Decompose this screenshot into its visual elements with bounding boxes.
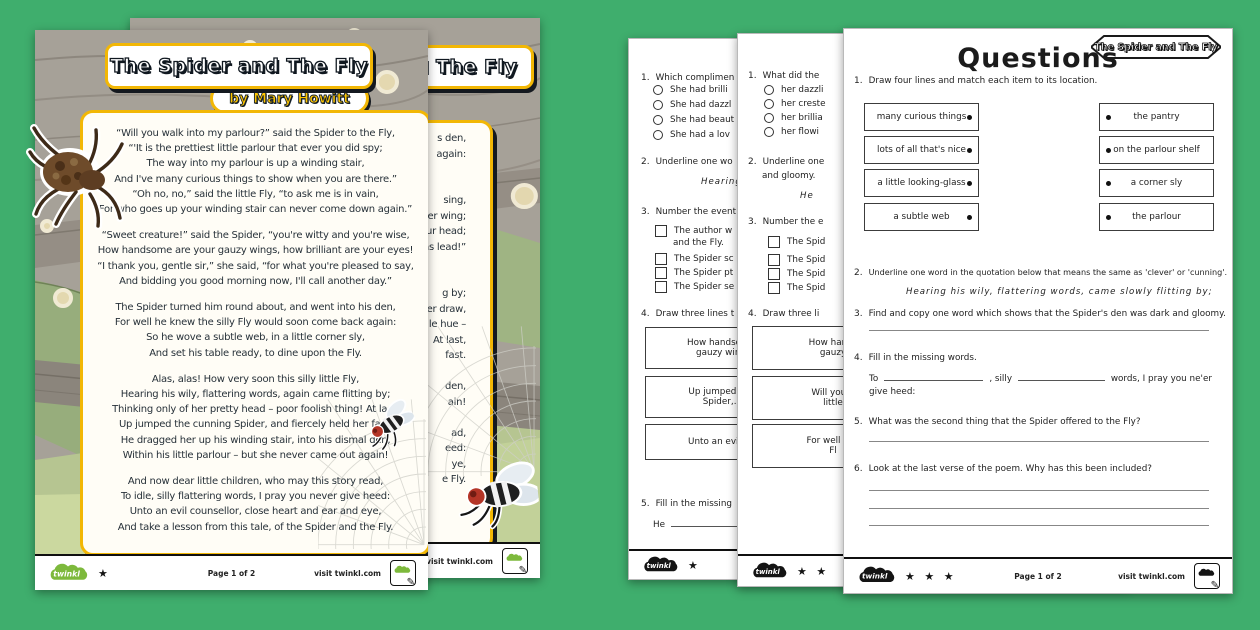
answer-option[interactable]: her dazzli: [764, 85, 824, 95]
poem-line: “I thank you, gentle sir,” she said, “fo…: [83, 259, 428, 274]
question-text: Number the event: [656, 207, 736, 217]
poem-line: And take a lesson from this tale, of the…: [83, 520, 428, 535]
poem-stanza: And now dear little children, who may th…: [83, 474, 428, 535]
answer-option[interactable]: She had dazzl: [653, 100, 731, 110]
answer-option[interactable]: She had brilli: [653, 85, 728, 95]
poem-line: And set his table ready, to dine upon th…: [83, 346, 428, 361]
checkbox-icon[interactable]: [655, 225, 667, 237]
match-box-label: little: [823, 398, 843, 408]
connector-dot-icon[interactable]: [967, 115, 972, 120]
fill-text: To: [869, 374, 878, 384]
sequence-label: The Spid: [787, 269, 825, 279]
poem-line: How handsome are your gauzy wings, how b…: [83, 243, 428, 258]
question-3: 3. Number the event: [641, 207, 736, 217]
poem-line: “'It is the prettiest little parlour tha…: [83, 141, 428, 156]
poem-author: by Mary Howitt: [229, 91, 350, 107]
quotation-text: Hearing his wily, flattering words, came…: [906, 287, 1213, 297]
match-box-right[interactable]: on the parlour shelf: [1099, 136, 1214, 164]
question-text: Underline one word in the quotation belo…: [869, 267, 1228, 277]
sequence-label: The Spid: [787, 255, 825, 265]
pencil-icon: ✎: [407, 577, 415, 588]
connector-dot-icon[interactable]: [1106, 148, 1111, 153]
radio-icon[interactable]: [653, 100, 663, 110]
sequence-item[interactable]: The Spider se: [655, 281, 734, 293]
answer-option[interactable]: She had a lov: [653, 130, 730, 140]
poem-line: And bidding you good morning now, I'll c…: [83, 274, 428, 289]
questions-footer: twinkl ★ ★ ★ Page 1 of 2 visit twinkl.co…: [844, 557, 1232, 593]
match-box-right[interactable]: the parlour: [1099, 203, 1214, 231]
visit-link[interactable]: visit twinkl.com: [426, 557, 493, 566]
match-box-left[interactable]: a subtle web: [864, 203, 979, 231]
poem-line: So he wove a subtle web, in a little cor…: [83, 330, 428, 345]
question-text: Number the e: [763, 217, 824, 227]
question-text: Fill in the missing words.: [869, 353, 977, 363]
answer-line[interactable]: [869, 507, 1209, 509]
match-box-label: the pantry: [1133, 112, 1179, 122]
question-number: 5.: [854, 417, 863, 427]
quotation-text: He: [800, 191, 814, 201]
poem-line: The Spider turned him round about, and w…: [83, 300, 428, 315]
question-number: 1.: [854, 76, 863, 86]
match-box-label: a little looking-glass: [877, 178, 965, 188]
question-1: 1. Which complimen: [641, 73, 734, 83]
twinkl-logo: twinkl: [750, 562, 788, 581]
question-text: Find and copy one word which shows that …: [869, 309, 1226, 319]
question-6: 6. Look at the last verse of the poem. W…: [854, 464, 1152, 474]
question-text: Underline one wo: [656, 157, 733, 167]
question-text: Look at the last verse of the poem. Why …: [869, 464, 1152, 474]
spider-web-art: [428, 326, 536, 476]
option-label: her brillia: [781, 113, 823, 123]
question-2: 2. Underline one word in the quotation b…: [854, 267, 1227, 278]
sequence-item[interactable]: The author w: [655, 225, 732, 237]
answer-prefix: He: [653, 520, 665, 530]
radio-icon[interactable]: [653, 85, 663, 95]
fly-illustration-large: [440, 453, 541, 536]
page-title: Questions: [844, 43, 1232, 74]
question-number: 4.: [641, 309, 650, 319]
connector-dot-icon[interactable]: [1106, 181, 1111, 186]
poem-line: To idle, silly flattering words, I pray …: [83, 489, 428, 504]
connector-dot-icon[interactable]: [967, 148, 972, 153]
poem-title-banner: The Spider and The Fly: [105, 43, 373, 89]
match-box-label: lots of all that's nice: [877, 145, 966, 155]
page-number: Page 1 of 2: [844, 572, 1232, 581]
poem-line: For well he knew the silly Fly would soo…: [83, 315, 428, 330]
checkbox-icon[interactable]: [768, 254, 780, 266]
match-box-label: a subtle web: [893, 212, 949, 222]
poem-line: For who goes up your winding stair can n…: [83, 202, 428, 217]
radio-icon[interactable]: [764, 113, 774, 123]
poem-text-panel: “Will you walk into my parlour?” said th…: [80, 110, 428, 556]
difficulty-stars: ★ ★: [797, 565, 829, 578]
poem-line: Unto an evil counsellor, close heart and…: [83, 504, 428, 519]
resource-preview-canvas: The Spider and The Fly s den, again: sin…: [0, 0, 1260, 630]
answer-blank[interactable]: [1018, 371, 1105, 381]
twinkl-badge-icon: ✎: [1194, 563, 1220, 589]
checkbox-icon[interactable]: [655, 267, 667, 279]
option-label: She had brilli: [670, 85, 728, 95]
question-number: 1.: [641, 73, 650, 83]
pencil-icon: ✎: [519, 565, 527, 576]
page-number: Page 1 of 2: [35, 569, 428, 578]
match-box-left[interactable]: a little looking-glass: [864, 169, 979, 197]
quotation-text: Hearing: [701, 177, 742, 187]
sequence-item[interactable]: The Spid: [768, 254, 825, 266]
connector-dot-icon[interactable]: [967, 181, 972, 186]
poem-line: Alas, alas! How very soon this silly lit…: [83, 372, 428, 387]
radio-icon[interactable]: [764, 85, 774, 95]
twinkl-badge-icon: ✎: [390, 560, 416, 586]
poem-body: “Will you walk into my parlour?” said th…: [83, 113, 428, 535]
match-box-label: on the parlour shelf: [1113, 145, 1200, 155]
answer-line[interactable]: [869, 489, 1209, 491]
option-label: She had dazzl: [670, 100, 731, 110]
question-text: What did the: [763, 71, 820, 81]
poem-line: “Will you walk into my parlour?” said th…: [83, 126, 428, 141]
sequence-label-line2: and the Fly.: [673, 238, 724, 248]
sequence-label: The Spid: [787, 237, 825, 247]
question-number: 5.: [641, 499, 650, 509]
answer-option[interactable]: She had beaut: [653, 115, 734, 125]
option-label: her dazzli: [781, 85, 824, 95]
sequence-label: The Spid: [787, 283, 825, 293]
option-label: her flowi: [781, 127, 819, 137]
question-3: 3. Find and copy one word which shows th…: [854, 309, 1226, 319]
question-4: 4. Draw three li: [748, 309, 819, 319]
answer-option[interactable]: her flowi: [764, 127, 819, 137]
sequence-item[interactable]: The Spid: [768, 282, 825, 294]
question-text: Which complimen: [656, 73, 735, 83]
question-number: 3.: [641, 207, 650, 217]
match-box-left[interactable]: many curious things: [864, 103, 979, 131]
poem-title: The Spider and The Fly: [110, 55, 368, 77]
question-text: Draw three li: [763, 309, 820, 319]
question-number: 2.: [641, 157, 650, 167]
question-2: 2. Underline one: [748, 157, 824, 167]
question-text: Draw three lines t: [656, 309, 735, 319]
match-box-right[interactable]: a corner sly: [1099, 169, 1214, 197]
radio-icon[interactable]: [653, 115, 663, 125]
connector-dot-icon[interactable]: [1106, 115, 1111, 120]
sequence-label: The author w: [674, 226, 732, 236]
question-number: 4.: [854, 353, 863, 363]
question-text: Fill in the missing: [656, 499, 732, 509]
radio-icon[interactable]: [653, 130, 663, 140]
question-number: 3.: [748, 217, 757, 227]
poem-line: And I've many curious things to show whe…: [83, 172, 428, 187]
question-text: What was the second thing that the Spide…: [869, 417, 1141, 427]
svg-text:twinkl: twinkl: [756, 568, 781, 576]
option-label: her creste: [781, 99, 826, 109]
twinkl-badge-icon: ✎: [502, 548, 528, 574]
answer-line[interactable]: [869, 329, 1209, 331]
question-number: 1.: [748, 71, 757, 81]
option-label: She had a lov: [670, 130, 730, 140]
checkbox-icon[interactable]: [768, 282, 780, 294]
checkbox-icon[interactable]: [655, 281, 667, 293]
sequence-label: The Spider pt: [674, 268, 733, 278]
question-5: 5. What was the second thing that the Sp…: [854, 417, 1141, 427]
question-1: 1. What did the: [748, 71, 819, 81]
match-box-label: a corner sly: [1131, 178, 1183, 188]
connector-dot-icon[interactable]: [967, 215, 972, 220]
answer-line[interactable]: [869, 440, 1209, 442]
option-label: She had beaut: [670, 115, 734, 125]
question-text: Draw four lines and match each item to i…: [869, 76, 1098, 86]
poem-line: The way into my parlour is up a winding …: [83, 156, 428, 171]
question-text-line2: and gloomy.: [762, 171, 815, 181]
poem-stanza: “Will you walk into my parlour?” said th…: [83, 126, 428, 217]
question-number: 6.: [854, 464, 863, 474]
checkbox-icon[interactable]: [655, 253, 667, 265]
sequence-label: The Spider se: [674, 282, 734, 292]
poem-line: “Oh no, no,” said the little Fly, “to as…: [83, 187, 428, 202]
match-box-label: many curious things: [877, 112, 967, 122]
difficulty-stars: ★: [688, 559, 701, 572]
answer-blank[interactable]: [884, 371, 983, 381]
poem-line: And now dear little children, who may th…: [83, 474, 428, 489]
fill-in-line: To , silly words, I pray you ne'er: [869, 371, 1212, 384]
question-3: 3. Number the e: [748, 217, 823, 227]
question-2: 2. Underline one wo: [641, 157, 733, 167]
question-4: 4. Draw three lines t: [641, 309, 734, 319]
question-4: 4. Fill in the missing words.: [854, 353, 977, 363]
poem-stanza: “Sweet creature!” said the Spider, “you'…: [83, 228, 428, 289]
radio-icon[interactable]: [764, 99, 774, 109]
spider-illustration: [26, 110, 128, 230]
svg-text:twinkl: twinkl: [647, 562, 672, 570]
match-box-label: Fl: [829, 446, 837, 456]
checkbox-icon[interactable]: [768, 268, 780, 280]
sequence-item[interactable]: The Spid: [768, 268, 825, 280]
question-number: 2.: [748, 157, 757, 167]
match-box-right[interactable]: the pantry: [1099, 103, 1214, 131]
fill-text-line2: give heed:: [869, 387, 915, 397]
twinkl-logo: twinkl: [641, 556, 679, 575]
fill-text: , silly: [989, 374, 1012, 384]
poem-stanza: The Spider turned him round about, and w…: [83, 300, 428, 361]
match-box-label: Spider,..: [703, 397, 740, 407]
sequence-item[interactable]: The Spider pt: [655, 267, 733, 279]
poem-footer: twinkl ★ Page 1 of 2 visit twinkl.com ✎: [35, 554, 428, 590]
question-1: 1. Draw four lines and match each item t…: [854, 76, 1097, 86]
radio-icon[interactable]: [764, 127, 774, 137]
sequence-item[interactable]: The Spider sc: [655, 253, 734, 265]
connector-dot-icon[interactable]: [1106, 215, 1111, 220]
answer-option[interactable]: her brillia: [764, 113, 823, 123]
question-number: 3.: [854, 309, 863, 319]
questions-page-three-star[interactable]: The Spider and The Fly Questions 1. Draw…: [843, 28, 1233, 594]
checkbox-icon[interactable]: [768, 236, 780, 248]
match-box-left[interactable]: lots of all that's nice: [864, 136, 979, 164]
question-text: Underline one: [763, 157, 825, 167]
question-5: 5. Fill in the missing: [641, 499, 732, 509]
sequence-item[interactable]: The Spid: [768, 236, 825, 248]
poem-line: “Sweet creature!” said the Spider, “you'…: [83, 228, 428, 243]
fill-text: words, I pray you ne'er: [1111, 374, 1212, 384]
pencil-icon: ✎: [1211, 580, 1219, 591]
question-number: 4.: [748, 309, 757, 319]
answer-option[interactable]: her creste: [764, 99, 826, 109]
sequence-label: The Spider sc: [674, 254, 734, 264]
match-box-label: the parlour: [1132, 212, 1181, 222]
question-number: 2.: [854, 268, 863, 278]
answer-line[interactable]: [869, 524, 1209, 526]
